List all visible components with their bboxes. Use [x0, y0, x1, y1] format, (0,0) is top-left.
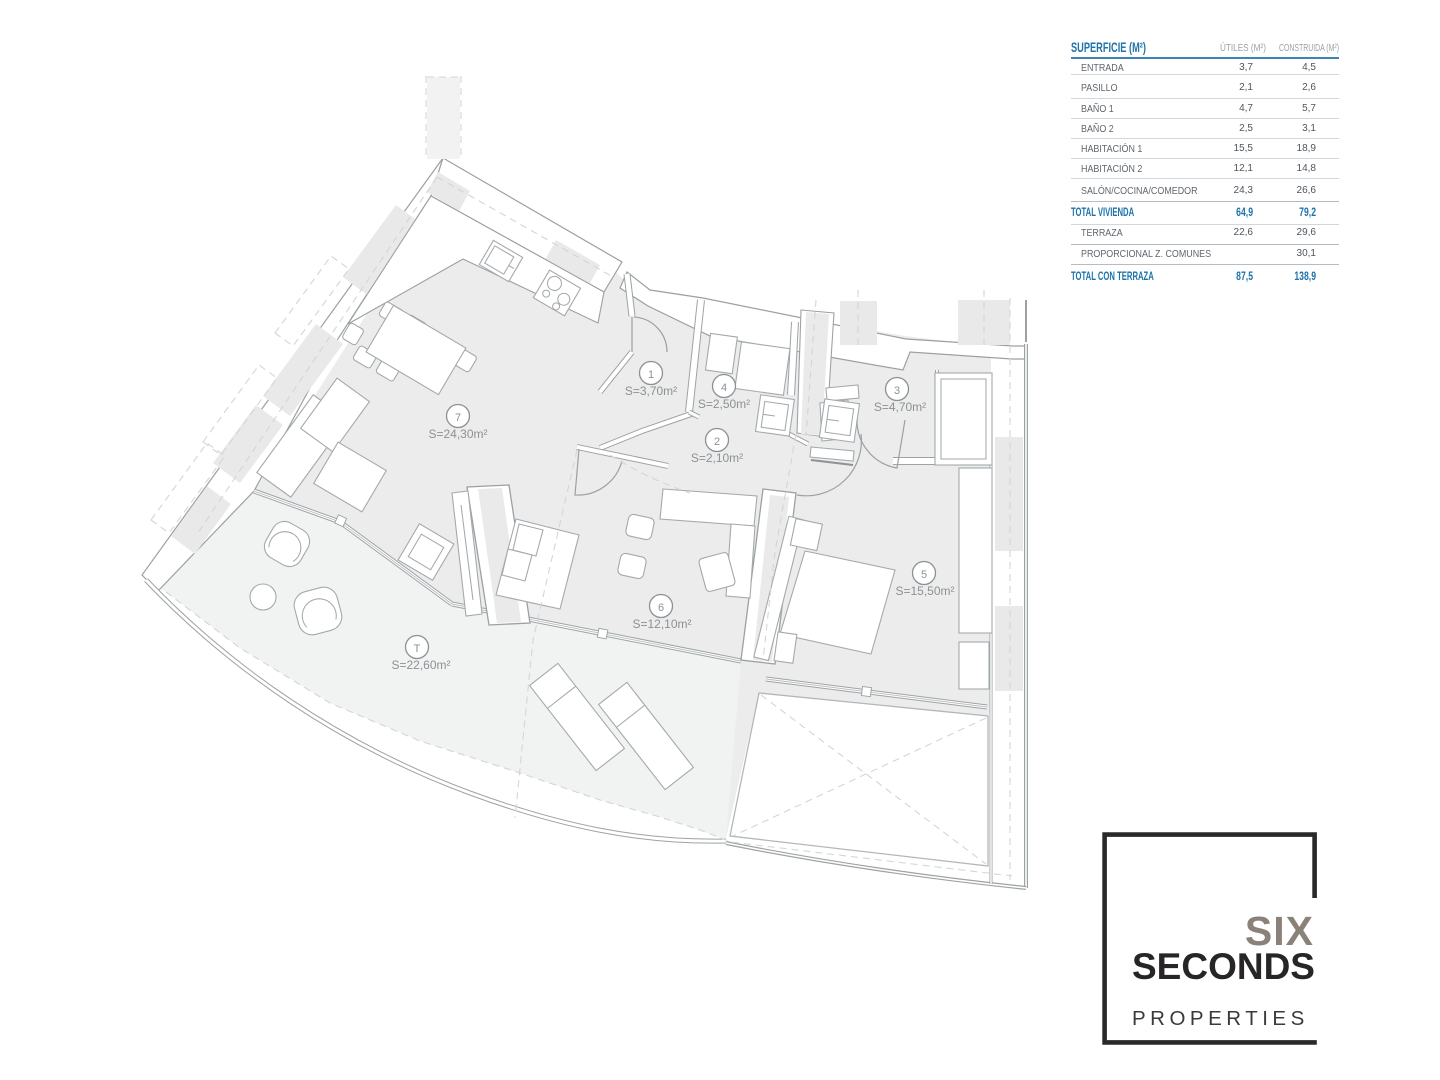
svg-text:S=22,60m²: S=22,60m² [391, 658, 450, 672]
svg-text:PROPERTIES: PROPERTIES [1132, 1007, 1309, 1030]
svg-text:4: 4 [721, 382, 727, 394]
svg-text:SECONDS: SECONDS [1132, 946, 1315, 987]
svg-text:3: 3 [894, 385, 900, 397]
svg-text:5: 5 [921, 569, 927, 581]
svg-text:T: T [414, 643, 421, 655]
svg-text:S=3,70m²: S=3,70m² [625, 384, 677, 398]
svg-text:S=24,30m²: S=24,30m² [428, 427, 487, 441]
svg-text:1: 1 [648, 369, 654, 381]
svg-text:2: 2 [714, 436, 720, 448]
svg-text:6: 6 [658, 602, 664, 614]
svg-text:S=12,10m²: S=12,10m² [632, 617, 691, 631]
svg-text:S=2,50m²: S=2,50m² [698, 397, 750, 411]
svg-text:S=2,10m²: S=2,10m² [691, 451, 743, 465]
svg-text:7: 7 [455, 412, 461, 424]
svg-text:S=15,50m²: S=15,50m² [895, 584, 954, 598]
svg-text:S=4,70m²: S=4,70m² [874, 400, 926, 414]
